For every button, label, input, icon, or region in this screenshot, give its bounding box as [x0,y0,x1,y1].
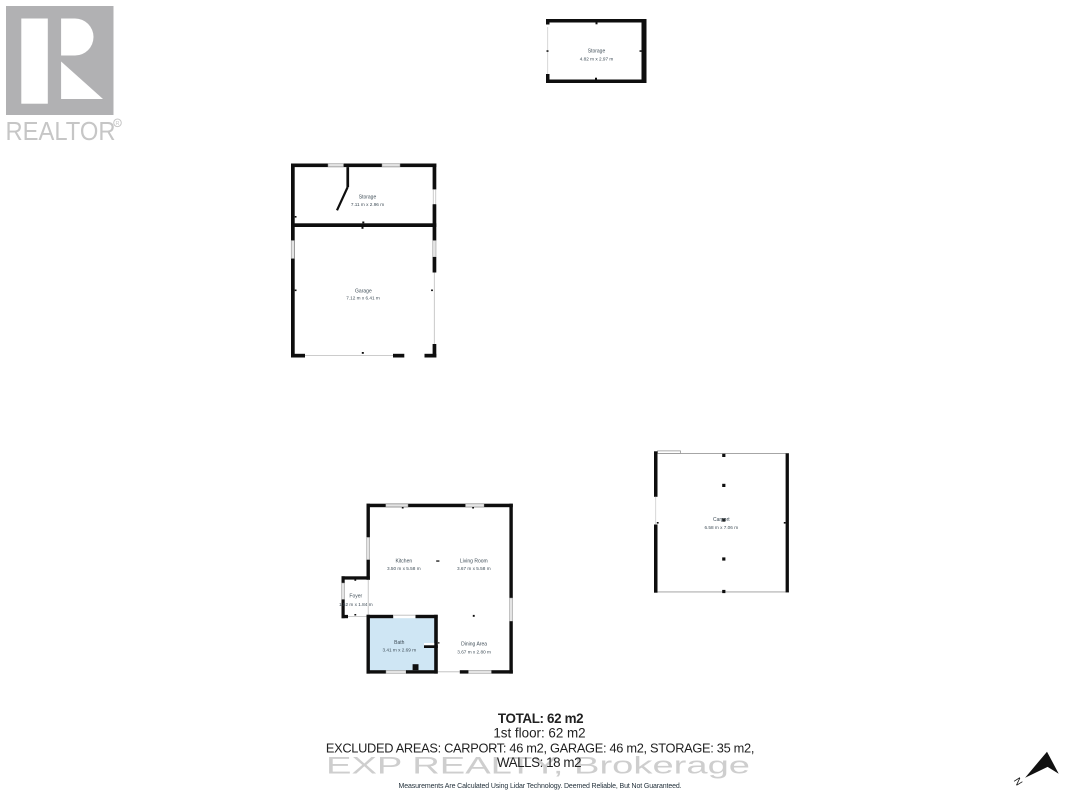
svg-text:EXCLUDED AREAS: CARPORT: 46 m2: EXCLUDED AREAS: CARPORT: 46 m2, GARAGE: … [326,740,754,755]
svg-text:6.58 m x 7.06 m: 6.58 m x 7.06 m [704,525,738,530]
svg-text:7.12 m x 6.41 m: 7.12 m x 6.41 m [346,295,380,300]
svg-text:Carport: Carport [713,517,730,523]
svg-text:7.11 m x 2.96 m: 7.11 m x 2.96 m [351,202,384,207]
svg-text:Dining Area: Dining Area [461,642,487,648]
svg-text:Kitchen: Kitchen [395,559,412,565]
svg-text:1.52 m x 1.84 m: 1.52 m x 1.84 m [339,602,373,607]
svg-text:Bath: Bath [394,640,405,646]
svg-text:Storage: Storage [359,194,377,200]
svg-text:Living Room: Living Room [460,559,488,565]
svg-text:3.50 m x 5.58 m: 3.50 m x 5.58 m [387,566,421,571]
svg-text:4.82 m x 2.97 m: 4.82 m x 2.97 m [580,57,614,62]
svg-text:REALTOR: REALTOR [6,118,116,146]
svg-text:Measurements Are Calculated Us: Measurements Are Calculated Using Lidar … [399,783,682,790]
svg-text:Storage: Storage [588,49,606,55]
svg-text:3.41 m x 2.69 m: 3.41 m x 2.69 m [382,648,416,653]
svg-text:1st floor: 62 m2: 1st floor: 62 m2 [493,726,585,741]
svg-text:R: R [116,121,120,127]
svg-text:WALLS: 18 m2: WALLS: 18 m2 [497,755,581,770]
svg-text:Foyer: Foyer [349,594,362,600]
svg-text:3.67 m x 2.80 m: 3.67 m x 2.80 m [457,649,491,654]
svg-text:3.67 m x 5.58 m: 3.67 m x 5.58 m [457,566,491,571]
svg-text:TOTAL: 62 m2: TOTAL: 62 m2 [498,711,583,726]
svg-text:Garage: Garage [355,288,372,294]
